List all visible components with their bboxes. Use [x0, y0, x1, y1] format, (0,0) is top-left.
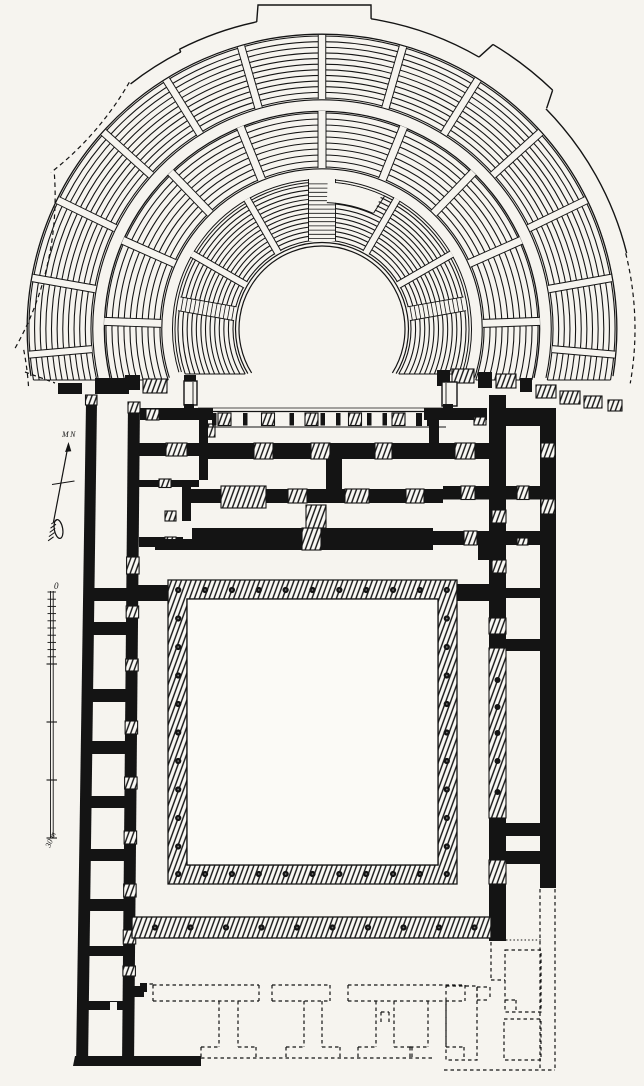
svg-text:0: 0 [54, 581, 59, 591]
svg-text:MN: MN [61, 430, 77, 439]
